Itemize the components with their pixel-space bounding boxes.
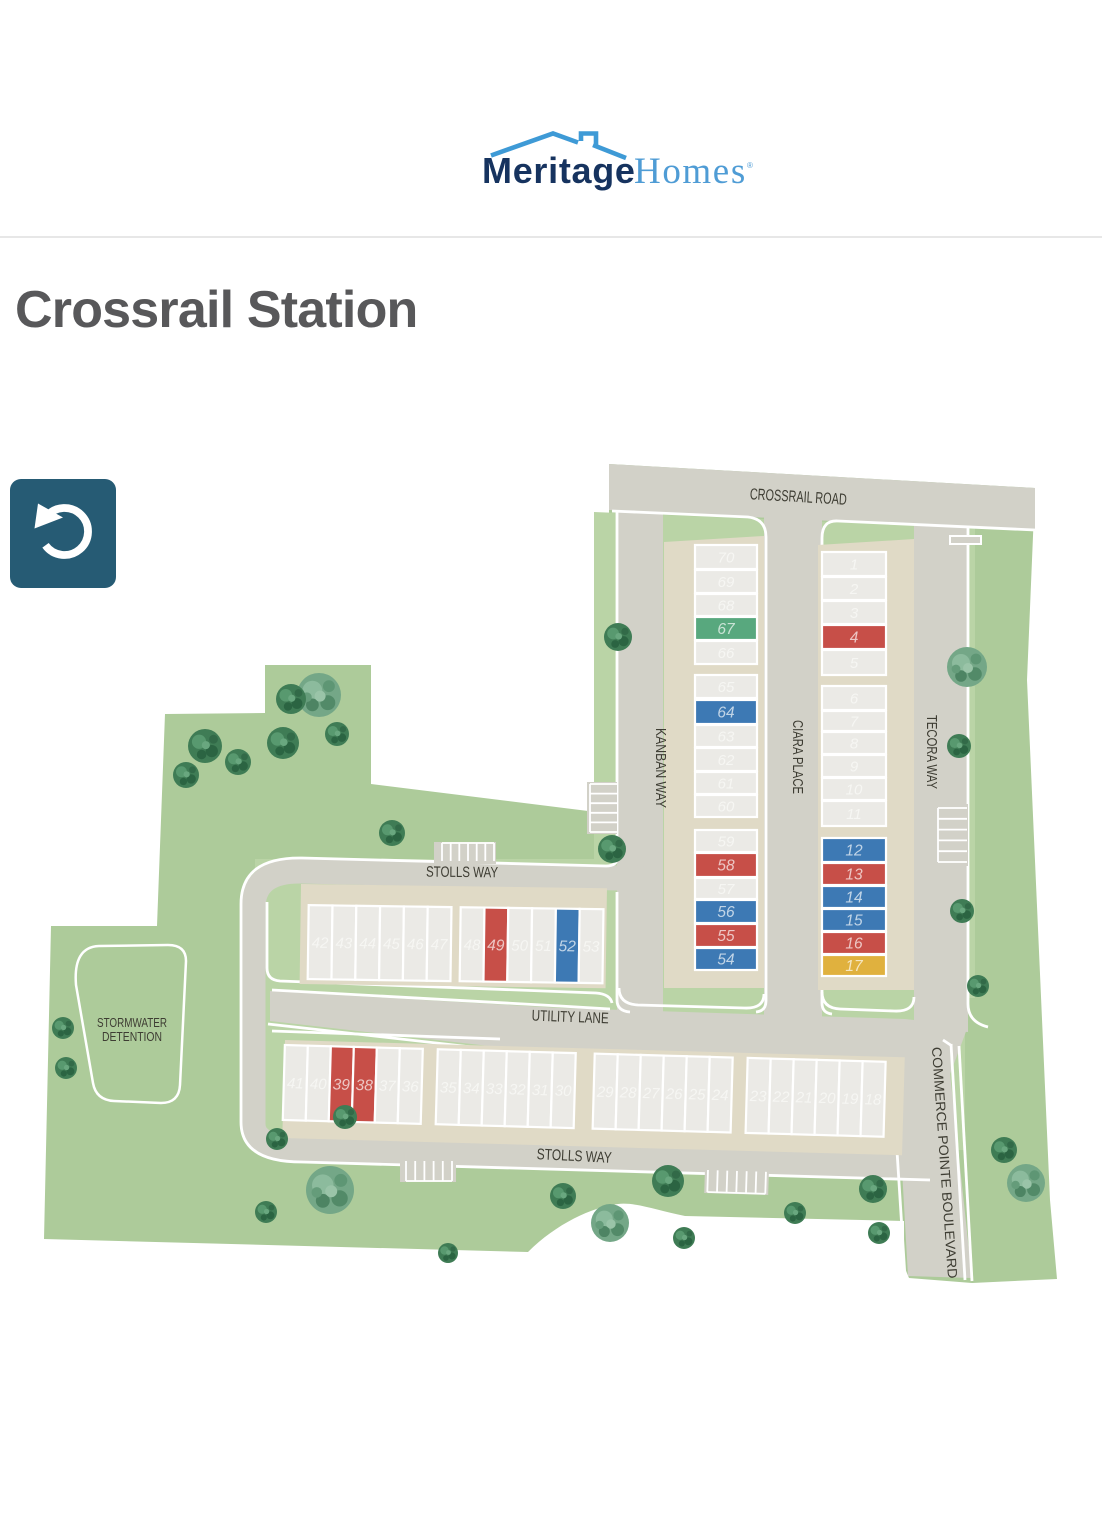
svg-text:40: 40: [310, 1076, 328, 1093]
svg-text:51: 51: [535, 938, 552, 955]
svg-text:62: 62: [718, 752, 735, 769]
svg-text:17: 17: [845, 958, 864, 975]
svg-text:22: 22: [772, 1089, 791, 1107]
svg-text:29: 29: [596, 1084, 615, 1102]
svg-text:53: 53: [583, 938, 601, 955]
svg-text:61: 61: [718, 776, 735, 793]
svg-text:13: 13: [845, 867, 863, 884]
svg-text:68: 68: [718, 598, 735, 615]
svg-text:59: 59: [718, 834, 735, 851]
svg-text:CIARA PLACE: CIARA PLACE: [789, 720, 805, 794]
svg-text:44: 44: [359, 935, 376, 952]
svg-text:39: 39: [332, 1076, 350, 1093]
svg-text:7: 7: [850, 714, 859, 731]
svg-text:Meritage: Meritage: [482, 150, 636, 191]
svg-text:3: 3: [850, 605, 859, 622]
svg-text:10: 10: [846, 782, 863, 799]
svg-text:48: 48: [464, 937, 482, 954]
svg-text:43: 43: [335, 935, 353, 952]
svg-text:54: 54: [717, 952, 735, 969]
svg-text:6: 6: [850, 691, 859, 708]
svg-text:60: 60: [718, 799, 735, 816]
svg-text:31: 31: [532, 1082, 549, 1099]
svg-text:11: 11: [846, 806, 862, 823]
svg-text:26: 26: [665, 1086, 684, 1104]
svg-text:24: 24: [711, 1087, 729, 1104]
svg-text:55: 55: [717, 928, 735, 945]
svg-text:Homes: Homes: [634, 151, 747, 192]
svg-text:45: 45: [383, 936, 401, 953]
svg-text:46: 46: [407, 936, 425, 953]
svg-text:20: 20: [817, 1090, 836, 1108]
svg-text:32: 32: [509, 1081, 527, 1098]
svg-text:18: 18: [864, 1091, 882, 1108]
svg-text:21: 21: [795, 1089, 813, 1106]
svg-text:TECORA WAY: TECORA WAY: [923, 715, 939, 789]
svg-text:70: 70: [718, 550, 735, 567]
svg-text:27: 27: [642, 1085, 661, 1103]
svg-text:30: 30: [555, 1083, 573, 1100]
svg-text:37: 37: [379, 1078, 397, 1095]
svg-text:16: 16: [845, 936, 863, 953]
svg-text:65: 65: [718, 679, 735, 696]
svg-text:DETENTION: DETENTION: [102, 1029, 162, 1044]
svg-text:UTILITY LANE: UTILITY LANE: [531, 1008, 609, 1028]
svg-text:15: 15: [845, 913, 863, 930]
svg-text:49: 49: [487, 937, 505, 954]
svg-text:8: 8: [850, 736, 859, 753]
svg-text:66: 66: [718, 645, 735, 662]
svg-text:47: 47: [431, 936, 449, 953]
svg-text:36: 36: [402, 1078, 420, 1095]
svg-text:69: 69: [718, 574, 735, 591]
svg-text:28: 28: [619, 1084, 638, 1102]
svg-text:KANBAN WAY: KANBAN WAY: [652, 728, 668, 808]
svg-text:33: 33: [486, 1081, 504, 1098]
svg-text:2: 2: [849, 581, 859, 598]
svg-text:64: 64: [717, 705, 735, 722]
svg-text:25: 25: [688, 1086, 707, 1104]
svg-text:56: 56: [717, 904, 735, 921]
svg-text:19: 19: [841, 1091, 859, 1108]
svg-text:50: 50: [511, 937, 529, 954]
svg-text:12: 12: [845, 843, 863, 860]
svg-text:9: 9: [850, 759, 859, 776]
svg-text:63: 63: [718, 729, 735, 746]
svg-text:42: 42: [312, 935, 330, 952]
svg-text:STOLLS WAY: STOLLS WAY: [426, 864, 498, 882]
svg-text:41: 41: [287, 1075, 304, 1092]
svg-text:38: 38: [355, 1077, 373, 1094]
svg-text:67: 67: [717, 621, 736, 638]
svg-text:®: ®: [747, 161, 753, 170]
svg-text:5: 5: [850, 655, 859, 672]
svg-text:35: 35: [440, 1079, 458, 1096]
svg-text:58: 58: [717, 858, 735, 875]
svg-text:52: 52: [559, 938, 577, 955]
svg-text:14: 14: [845, 890, 863, 907]
svg-text:23: 23: [749, 1088, 768, 1106]
svg-text:STORMWATER: STORMWATER: [97, 1015, 167, 1030]
svg-text:4: 4: [850, 630, 859, 647]
svg-text:34: 34: [463, 1080, 480, 1097]
svg-text:1: 1: [850, 557, 858, 574]
svg-text:57: 57: [718, 881, 735, 898]
